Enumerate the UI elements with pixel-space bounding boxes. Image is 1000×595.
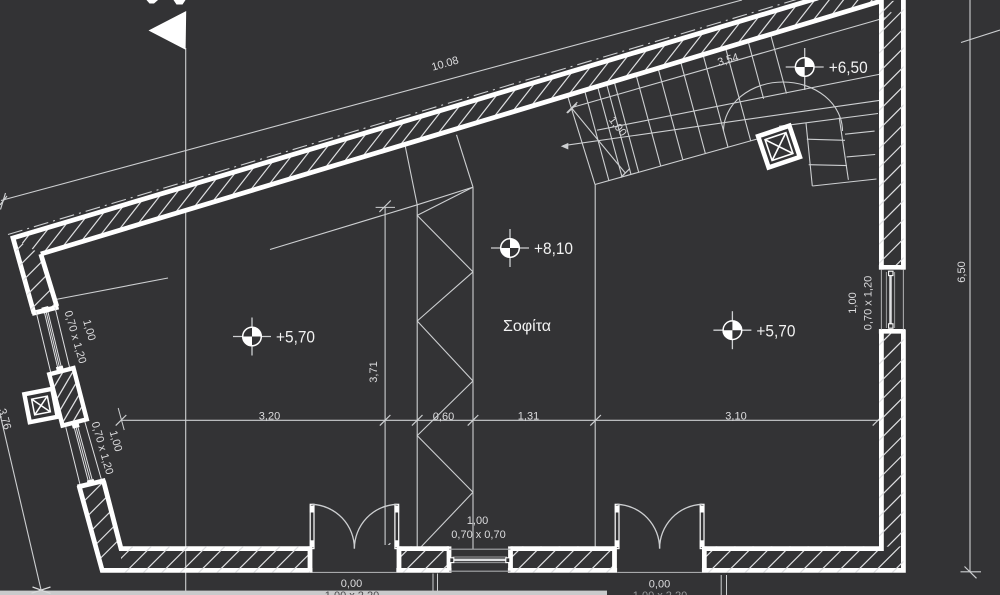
svg-text:+6,50: +6,50 [829, 58, 868, 77]
svg-text:6,50: 6,50 [956, 261, 968, 282]
svg-text:Σοφίτα: Σοφίτα [503, 318, 551, 335]
svg-text:1,00: 1,00 [467, 515, 488, 527]
svg-text:3,20: 3,20 [259, 410, 280, 422]
svg-text:0,70 x 1,20: 0,70 x 1,20 [863, 276, 875, 330]
svg-text:+5,70: +5,70 [276, 328, 315, 347]
svg-text:3,71: 3,71 [368, 361, 380, 382]
svg-text:0,00: 0,00 [649, 579, 670, 591]
svg-text:3,10: 3,10 [725, 410, 746, 422]
svg-text:+5,70: +5,70 [756, 321, 795, 340]
svg-text:1,00 x 2,20: 1,00 x 2,20 [633, 590, 687, 595]
svg-text:1,00: 1,00 [847, 292, 859, 313]
svg-text:+8,10: +8,10 [534, 239, 573, 258]
svg-text:1,31: 1,31 [518, 410, 539, 422]
svg-text:0,70 x 0,70: 0,70 x 0,70 [451, 529, 505, 541]
svg-text:1,00 x 2,20: 1,00 x 2,20 [325, 590, 379, 595]
svg-text:0,00: 0,00 [341, 578, 362, 590]
